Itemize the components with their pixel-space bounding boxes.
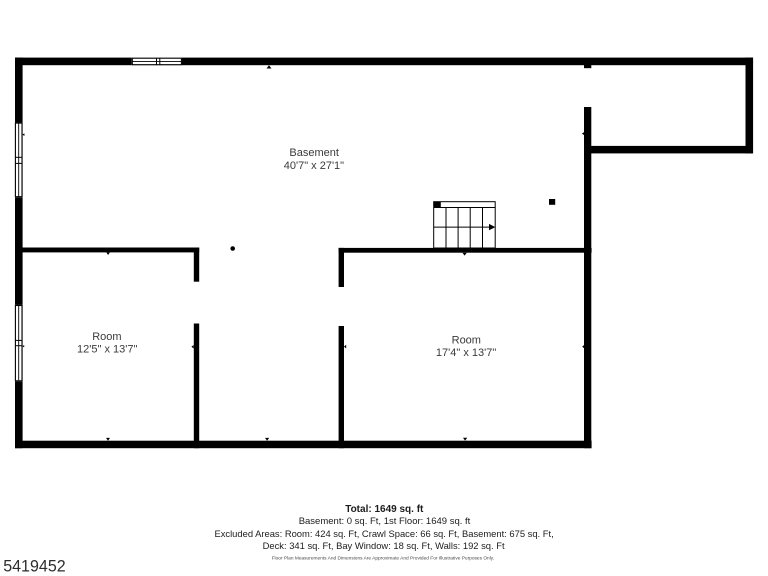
svg-text:Room: Room bbox=[92, 331, 121, 343]
svg-text:Excluded Areas: Room: 424 sq.: Excluded Areas: Room: 424 sq. Ft, Crawl … bbox=[214, 528, 553, 539]
svg-text:Basement: 0 sq. Ft, 1st Floor:: Basement: 0 sq. Ft, 1st Floor: 1649 sq. … bbox=[299, 516, 471, 527]
svg-text:40'7" x 27'1": 40'7" x 27'1" bbox=[284, 160, 344, 172]
svg-text:Deck: 341 sq. Ft, Bay Window:: Deck: 341 sq. Ft, Bay Window: 18 sq. Ft,… bbox=[263, 540, 505, 551]
svg-text:Basement: Basement bbox=[289, 147, 339, 159]
svg-text:Total: 1649 sq. ft: Total: 1649 sq. ft bbox=[345, 504, 424, 515]
svg-text:12'5" x 13'7": 12'5" x 13'7" bbox=[77, 344, 137, 356]
svg-text:Floor Plan Measurements And Di: Floor Plan Measurements And Dimensions A… bbox=[272, 556, 495, 562]
svg-text:Room: Room bbox=[452, 335, 481, 347]
svg-text:17'4" x 13'7": 17'4" x 13'7" bbox=[436, 347, 496, 359]
svg-text:5419452: 5419452 bbox=[3, 557, 65, 576]
